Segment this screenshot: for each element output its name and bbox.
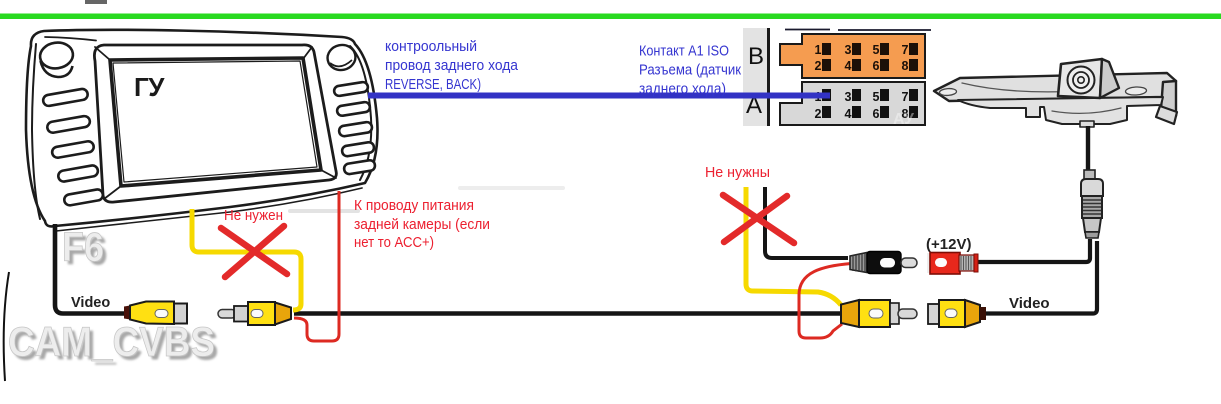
svg-text:Контакт А1 ISO: Контакт А1 ISO (639, 44, 729, 60)
svg-text:1: 1 (815, 43, 822, 57)
svg-text:CAM_CVBS: CAM_CVBS (8, 318, 215, 365)
svg-text:8: 8 (902, 59, 909, 73)
svg-text:контроольный: контроольный (385, 39, 477, 55)
svg-text:Разъема (датчик: Разъема (датчик (639, 63, 742, 79)
svg-text:ГУ: ГУ (134, 72, 165, 102)
svg-text:7: 7 (902, 43, 909, 57)
svg-text:REVERSE, BACK): REVERSE, BACK) (385, 77, 481, 93)
svg-text:2: 2 (815, 107, 822, 121)
svg-text:3: 3 (845, 43, 852, 57)
svg-text:Не нужен: Не нужен (224, 208, 283, 224)
svg-text:2: 2 (815, 59, 822, 73)
svg-text:5: 5 (873, 43, 880, 57)
svg-text:К проводу питания: К проводу питания (354, 198, 474, 214)
svg-text:Video: Video (1009, 295, 1050, 312)
svg-text:B: B (748, 43, 764, 70)
svg-text:Video: Video (71, 295, 110, 311)
svg-text:Не нужны: Не нужны (705, 165, 770, 181)
svg-text:задней камеры (если: задней камеры (если (354, 217, 490, 233)
svg-text:4: 4 (845, 59, 852, 73)
svg-text:6: 6 (873, 59, 880, 73)
svg-text:АУ: АУ (893, 111, 915, 128)
svg-text:4: 4 (845, 107, 852, 121)
svg-text:5: 5 (873, 90, 880, 104)
svg-text:нет то АСС+): нет то АСС+) (354, 235, 434, 251)
svg-text:(+12V): (+12V) (926, 236, 971, 253)
svg-text:заднего хода): заднего хода) (639, 82, 726, 98)
svg-text:провод заднего хода: провод заднего хода (385, 58, 519, 74)
svg-text:7: 7 (902, 90, 909, 104)
svg-text:6: 6 (873, 107, 880, 121)
svg-text:F6: F6 (62, 224, 104, 270)
svg-text:3: 3 (845, 90, 852, 104)
